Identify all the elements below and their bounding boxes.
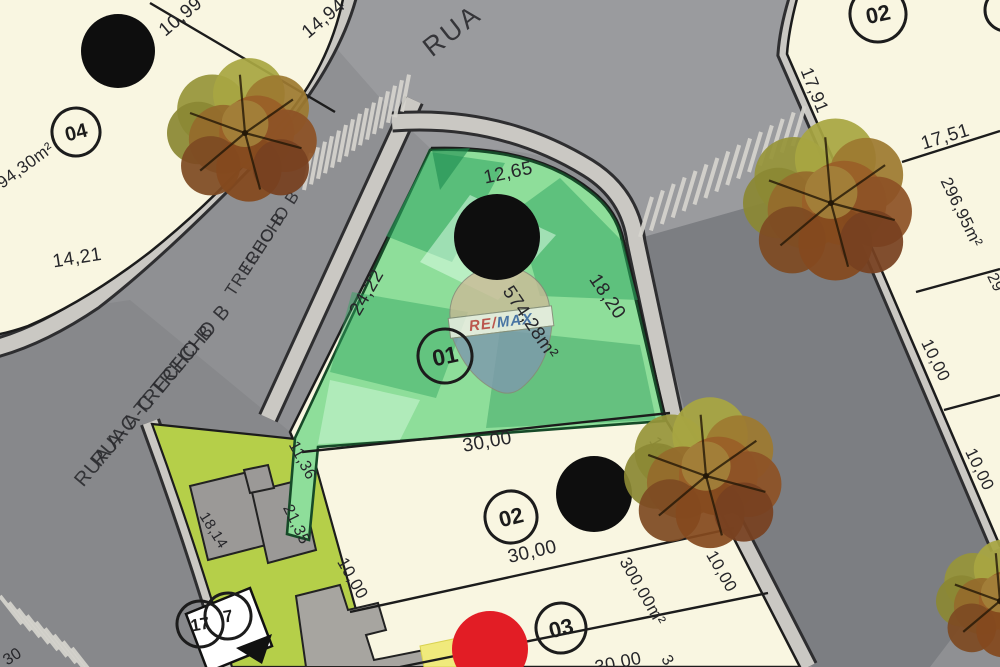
site-plan-map: RE/MAX RUATRECHO BTRECHO BRUA A-C TRECHO… <box>0 0 1000 667</box>
tree-trunk <box>828 200 834 206</box>
black-survey-dot-2 <box>556 456 632 532</box>
tree-trunk <box>242 130 248 136</box>
black-survey-dot-0 <box>81 14 155 88</box>
lot-marker-number: 02 <box>863 0 892 29</box>
black-survey-dot-1 <box>454 194 540 280</box>
remax-re: RE <box>468 315 493 335</box>
park-building-3 <box>244 465 274 493</box>
tree-trunk <box>703 473 709 479</box>
site-plan-screenshot: RE/MAX RUATRECHO BTRECHO BRUA A-C TRECHO… <box>0 0 1000 667</box>
